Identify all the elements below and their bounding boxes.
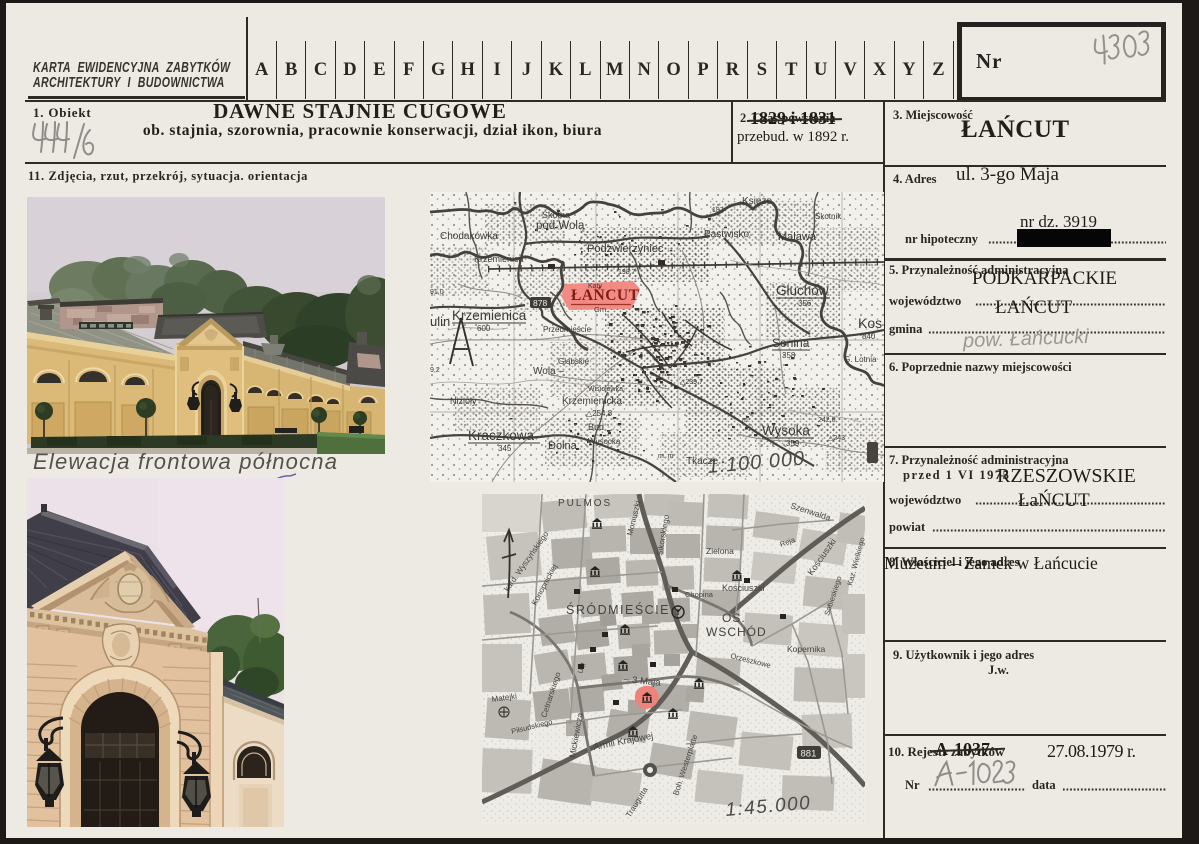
svg-text:Chodakówka: Chodakówka bbox=[440, 231, 498, 242]
svg-text:356: 356 bbox=[798, 299, 812, 308]
svg-text:Skotnik: Skotnik bbox=[815, 212, 842, 221]
svg-text:Pastwisko: Pastwisko bbox=[704, 229, 749, 240]
svg-text:Wola –: Wola – bbox=[533, 366, 564, 377]
svg-text:Kos: Kos bbox=[858, 315, 882, 331]
svg-text:Wysocka: Wysocka bbox=[588, 437, 621, 446]
svg-text:Kościuszki: Kościuszki bbox=[722, 583, 765, 593]
svg-text:△243: △243 bbox=[828, 435, 845, 442]
svg-text:ŚRÓDMIEŚCIE: ŚRÓDMIEŚCIE bbox=[566, 602, 670, 617]
svg-text:345: 345 bbox=[498, 444, 512, 453]
svg-text:Głuchów: Głuchów bbox=[776, 283, 829, 298]
svg-text:878: 878 bbox=[533, 298, 547, 308]
svg-text:Kraczkowa: Kraczkowa bbox=[468, 428, 535, 443]
svg-text:Wisiołówka: Wisiołówka bbox=[588, 386, 623, 393]
svg-text:Kopernika: Kopernika bbox=[787, 644, 826, 654]
svg-text:Chopina: Chopina bbox=[685, 590, 714, 599]
svg-text:600: 600 bbox=[477, 324, 491, 333]
svg-text:Zielona: Zielona bbox=[706, 546, 734, 556]
svg-text:OS.: OS. bbox=[722, 611, 746, 625]
svg-text:9,2: 9,2 bbox=[430, 367, 440, 374]
svg-text:358: 358 bbox=[782, 351, 796, 360]
svg-text:pod Wolą: pod Wolą bbox=[536, 220, 585, 232]
svg-text:Krzemienica: Krzemienica bbox=[452, 308, 527, 323]
svg-text:Kąty: Kąty bbox=[588, 283, 603, 290]
svg-text:Nizioły: Nizioły bbox=[450, 396, 477, 406]
svg-text:Sonina: Sonina bbox=[772, 336, 810, 350]
svg-text:△254,8: △254,8 bbox=[586, 409, 613, 418]
svg-text:△239,7: △239,7 bbox=[680, 379, 703, 386]
svg-text:Gm.: Gm. bbox=[594, 305, 608, 314]
svg-text:198,7: 198,7 bbox=[618, 269, 636, 276]
svg-text:840: 840 bbox=[862, 332, 876, 341]
svg-text:ŁAŃCUT: ŁAŃCUT bbox=[571, 287, 640, 304]
svg-text:91,0: 91,0 bbox=[430, 289, 444, 296]
svg-text:Głąbskie: Głąbskie bbox=[558, 357, 590, 366]
svg-text:Krzemienica: Krzemienica bbox=[474, 254, 524, 264]
svg-text:359: 359 bbox=[786, 439, 800, 448]
svg-text:187: 187 bbox=[712, 207, 724, 214]
svg-text:Wysoka: Wysoka bbox=[762, 423, 810, 438]
svg-text:PULMOS: PULMOS bbox=[558, 498, 612, 509]
svg-text:Bud: Bud bbox=[588, 422, 604, 432]
svg-text:m.: m. bbox=[742, 417, 750, 424]
svg-text:Krzemienicka: Krzemienicka bbox=[562, 396, 622, 407]
svg-text:m. m: m. m bbox=[658, 453, 674, 460]
svg-text:ulin: ulin bbox=[430, 314, 450, 329]
svg-text:Skotna: Skotna bbox=[542, 210, 570, 220]
svg-text:Księże: Księże bbox=[742, 196, 772, 207]
svg-text:Podzwierzyniec: Podzwierzyniec bbox=[587, 243, 664, 255]
svg-text:242,0: 242,0 bbox=[818, 417, 836, 424]
svg-text:Przedmieście: Przedmieście bbox=[543, 325, 592, 334]
svg-text:G. Lotnia: G. Lotnia bbox=[844, 355, 877, 364]
svg-text:881: 881 bbox=[801, 749, 817, 760]
svg-text:Malawa: Malawa bbox=[778, 231, 817, 243]
svg-text:Dolna: Dolna bbox=[548, 440, 578, 452]
svg-text:WSCHÓD: WSCHÓD bbox=[706, 624, 767, 639]
